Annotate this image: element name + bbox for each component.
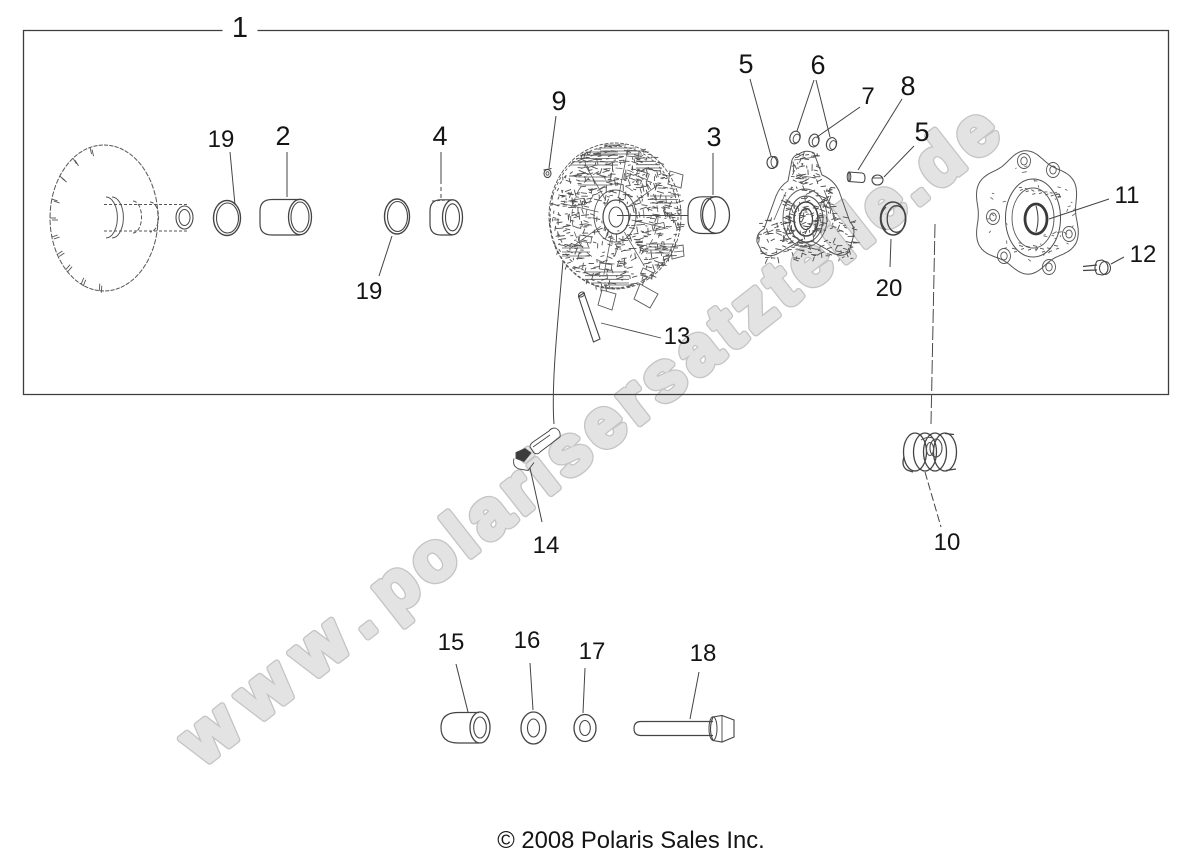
svg-text:19: 19 bbox=[356, 278, 383, 305]
svg-text:4: 4 bbox=[432, 121, 447, 151]
svg-text:8: 8 bbox=[900, 71, 915, 101]
svg-text:13: 13 bbox=[664, 323, 691, 350]
svg-text:16: 16 bbox=[514, 627, 541, 654]
svg-text:20: 20 bbox=[876, 275, 903, 302]
svg-text:12: 12 bbox=[1130, 241, 1157, 268]
svg-text:18: 18 bbox=[690, 640, 717, 667]
svg-text:1: 1 bbox=[232, 12, 248, 44]
svg-text:5: 5 bbox=[738, 49, 753, 79]
svg-text:3: 3 bbox=[706, 122, 721, 152]
svg-text:11: 11 bbox=[1115, 182, 1140, 209]
svg-text:7: 7 bbox=[861, 83, 874, 110]
svg-text:www.polarisersatzteile.de: www.polarisersatzteile.de bbox=[164, 87, 1018, 779]
svg-text:14: 14 bbox=[533, 532, 560, 559]
svg-text:5: 5 bbox=[914, 117, 929, 147]
svg-text:© 2008 Polaris Sales Inc.: © 2008 Polaris Sales Inc. bbox=[497, 827, 765, 854]
svg-text:9: 9 bbox=[551, 86, 566, 116]
svg-text:19: 19 bbox=[208, 126, 235, 153]
svg-text:17: 17 bbox=[579, 638, 606, 665]
svg-text:10: 10 bbox=[934, 529, 961, 556]
svg-text:15: 15 bbox=[438, 629, 465, 656]
svg-text:6: 6 bbox=[810, 50, 825, 80]
svg-text:2: 2 bbox=[275, 121, 290, 151]
